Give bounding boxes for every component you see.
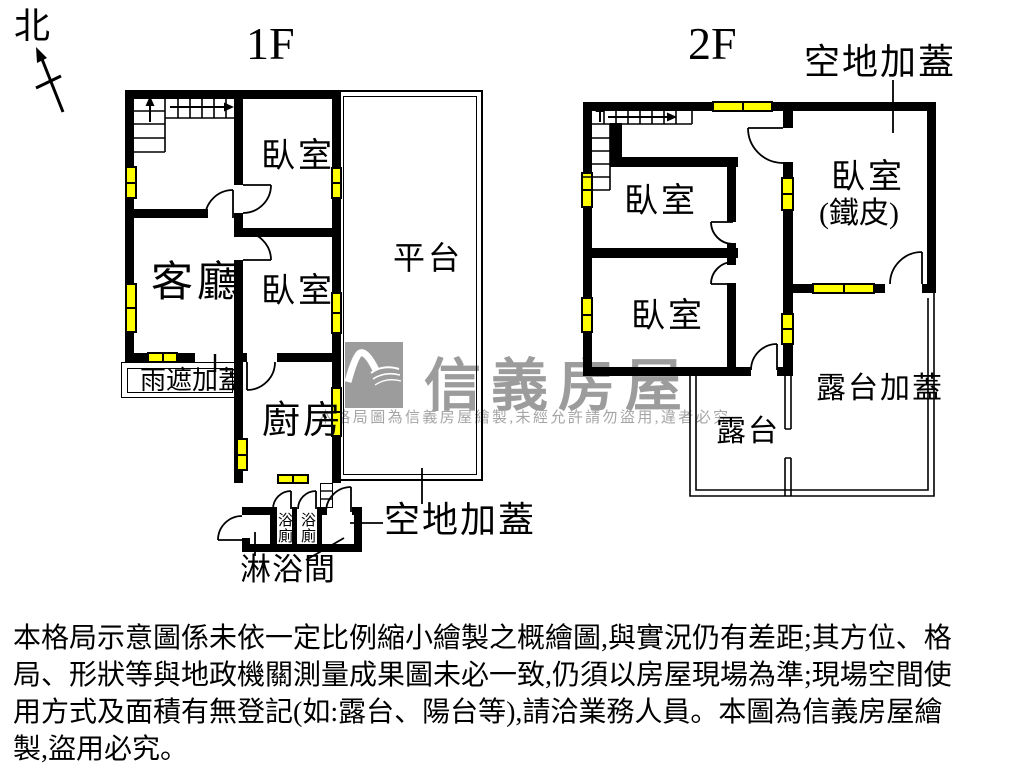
wall-segment bbox=[242, 544, 362, 552]
stairs-1f bbox=[133, 97, 238, 152]
window bbox=[125, 166, 137, 199]
wall-segment bbox=[922, 284, 936, 293]
wall-segment bbox=[234, 228, 341, 237]
window bbox=[147, 352, 178, 363]
window bbox=[712, 101, 773, 112]
room-label-bedroom-b-2f: 臥室 bbox=[631, 299, 705, 335]
room-label-rain-cover-1f: 雨遮加蓋 bbox=[140, 367, 244, 394]
room-label-terrace-2f: 露台 bbox=[716, 416, 780, 448]
room-label-shower-1f: 淋浴間 bbox=[240, 554, 336, 587]
annotation-open-addition-1f: 空地加蓋 bbox=[384, 502, 536, 540]
disclaimer-line-4: 製,盜用必究。 bbox=[13, 727, 188, 767]
stair-arrow-right-2f bbox=[667, 113, 677, 122]
platform-outline-inner bbox=[343, 96, 477, 475]
wall-segment bbox=[783, 102, 793, 128]
window bbox=[277, 474, 309, 484]
room-label-platform-1f: 平台 bbox=[393, 242, 463, 276]
wall-segment bbox=[317, 507, 322, 544]
wall-segment bbox=[242, 507, 250, 513]
room-label-bedroom-mid-1f: 臥室 bbox=[261, 274, 335, 310]
north-arrow-icon bbox=[36, 47, 63, 112]
wall-segment bbox=[727, 243, 736, 265]
wall-segment bbox=[125, 209, 208, 218]
room-label-bath-left-1f: 浴廁 bbox=[277, 513, 294, 545]
stair-arrow-right-1f bbox=[224, 103, 234, 112]
wall-segment bbox=[610, 123, 622, 167]
ladder bbox=[320, 483, 333, 508]
wall-segment bbox=[234, 90, 243, 185]
wall-segment bbox=[583, 102, 592, 375]
window bbox=[581, 172, 593, 208]
wall-segment bbox=[927, 102, 936, 293]
window bbox=[812, 283, 875, 294]
north-label: 北 bbox=[14, 8, 50, 46]
window bbox=[781, 177, 794, 211]
room-label-kitchen-1f: 廚房 bbox=[262, 402, 344, 442]
room-label-bedroom-tin-sub-2f: (鐵皮) bbox=[819, 198, 899, 230]
window bbox=[236, 438, 248, 471]
room-label-living-1f: 客廳 bbox=[151, 261, 243, 305]
room-label-bath-right-1f: 浴廁 bbox=[300, 513, 317, 545]
wall-segment bbox=[322, 507, 327, 515]
window bbox=[125, 283, 137, 333]
wall-segment bbox=[727, 157, 736, 222]
wall-segment bbox=[270, 507, 277, 544]
wall-segment bbox=[727, 283, 736, 367]
wall-segment bbox=[777, 367, 793, 376]
room-label-bedroom-top-1f: 臥室 bbox=[261, 139, 335, 175]
wall-segment bbox=[277, 353, 341, 362]
disclaimer-line-1: 本格局示意圖係未依一定比例縮小繪製之概繪圖,與實況仍有差距;其方位、格 bbox=[13, 616, 952, 656]
disclaimer-line-2: 局、形狀等與地政機關測量成果圖未必一致,仍須以房屋現場為準;現場空間使 bbox=[13, 653, 952, 693]
window bbox=[781, 313, 794, 345]
wall-segment bbox=[125, 90, 341, 99]
floor-plan-canvas: 信義房屋 本格局圖為信義房屋繪製,未經允許請勿盜用,違者必究 bbox=[0, 0, 1024, 768]
disclaimer-line-3: 用方式及面積有無登記(如:露台、陽台等),請洽業務人員。本圖為信義房屋繪 bbox=[13, 690, 942, 730]
wall-segment bbox=[610, 157, 738, 167]
wall-segment bbox=[588, 248, 738, 258]
wall-segment bbox=[583, 367, 751, 376]
floor-1-title: 1F bbox=[246, 20, 295, 68]
room-label-bedroom-tin-2f: 臥室 bbox=[831, 160, 905, 196]
wall-segment bbox=[234, 353, 247, 362]
stairs-2f bbox=[583, 108, 692, 190]
room-label-bedroom-a-2f: 臥室 bbox=[624, 184, 698, 220]
room-label-terrace-cover-2f: 露台加蓋 bbox=[816, 373, 944, 405]
annotation-open-addition-2f: 空地加蓋 bbox=[804, 44, 956, 82]
floor-2-title: 2F bbox=[688, 20, 737, 68]
window bbox=[581, 297, 593, 333]
